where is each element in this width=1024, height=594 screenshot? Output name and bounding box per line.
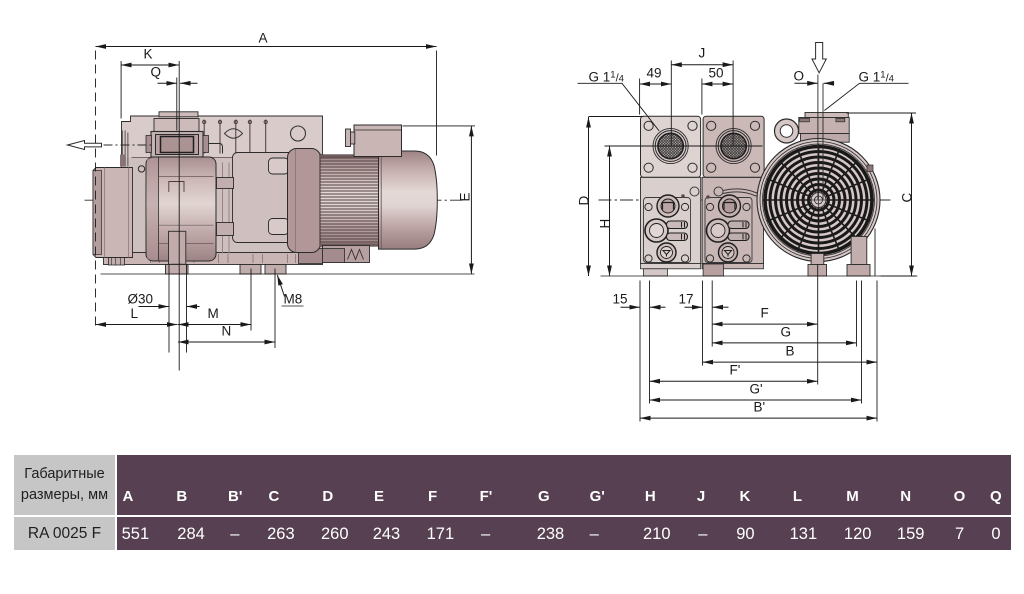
svg-text:17: 17 [679,292,694,307]
svg-text:A: A [259,31,268,46]
svg-text:M: M [208,306,219,321]
svg-text:49: 49 [647,66,662,81]
svg-text:M8: M8 [284,292,303,307]
svg-text:L: L [131,306,139,321]
svg-text:G 11/4: G 11/4 [859,70,894,85]
svg-text:Ø30: Ø30 [128,292,154,307]
svg-text:N: N [222,324,232,339]
svg-text:50: 50 [709,66,724,81]
svg-text:F: F [761,306,769,321]
svg-text:B': B' [754,400,766,415]
svg-text:O: O [794,69,805,84]
svg-text:J: J [699,46,706,61]
svg-text:G 11/4: G 11/4 [589,70,624,85]
svg-text:K: K [144,47,153,62]
svg-text:15: 15 [613,292,628,307]
svg-text:F': F' [730,363,741,378]
svg-text:B: B [786,344,795,359]
svg-text:G: G [781,325,792,340]
svg-text:C: C [900,193,915,203]
svg-text:G': G' [750,382,763,397]
svg-text:E: E [458,192,473,201]
svg-text:Q: Q [151,65,162,80]
svg-text:D: D [577,196,592,206]
svg-text:H: H [598,219,613,229]
